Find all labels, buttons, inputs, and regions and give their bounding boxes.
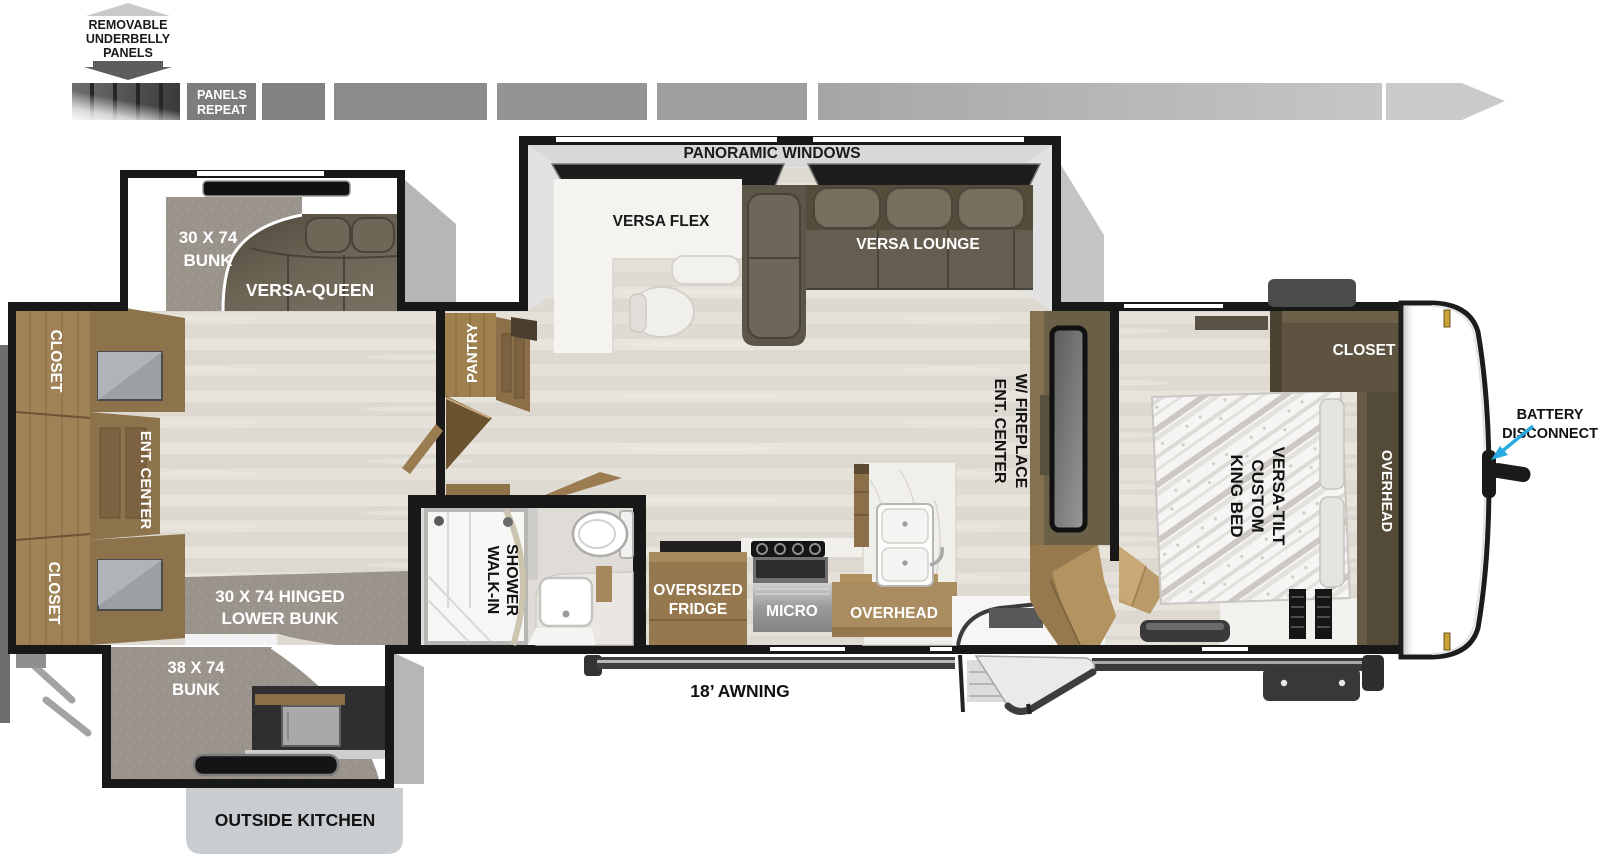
svg-text:OVERHEAD: OVERHEAD bbox=[850, 605, 938, 622]
svg-text:REMOVABLE: REMOVABLE bbox=[89, 18, 168, 32]
svg-text:PANTRY: PANTRY bbox=[464, 323, 481, 383]
svg-text:PANELS: PANELS bbox=[197, 88, 247, 102]
svg-text:VERSA-TILT: VERSA-TILT bbox=[1269, 447, 1288, 546]
svg-text:38 X 74: 38 X 74 bbox=[168, 659, 226, 677]
svg-text:W/ FIREPLACE: W/ FIREPLACE bbox=[1012, 374, 1029, 489]
svg-text:ENT. CENTER: ENT. CENTER bbox=[137, 431, 154, 530]
svg-text:OVERSIZED: OVERSIZED bbox=[653, 582, 743, 599]
svg-text:18’ AWNING: 18’ AWNING bbox=[690, 681, 790, 701]
svg-text:30 X 74 HINGED: 30 X 74 HINGED bbox=[215, 587, 344, 606]
svg-text:CLOSET: CLOSET bbox=[1333, 342, 1396, 359]
svg-text:CLOSET: CLOSET bbox=[45, 562, 62, 625]
svg-text:OUTSIDE KITCHEN: OUTSIDE KITCHEN bbox=[215, 810, 375, 830]
svg-text:VERSA LOUNGE: VERSA LOUNGE bbox=[856, 236, 979, 253]
svg-text:PANORAMIC WINDOWS: PANORAMIC WINDOWS bbox=[683, 145, 860, 162]
svg-text:BATTERY: BATTERY bbox=[1517, 407, 1584, 423]
svg-text:MICRO: MICRO bbox=[766, 603, 818, 620]
svg-text:30 X 74: 30 X 74 bbox=[179, 228, 238, 247]
svg-text:WALK-IN: WALK-IN bbox=[484, 546, 501, 614]
svg-text:UNDERBELLY: UNDERBELLY bbox=[86, 32, 171, 46]
svg-text:KING BED: KING BED bbox=[1227, 454, 1246, 537]
svg-text:ENT. CENTER: ENT. CENTER bbox=[991, 379, 1008, 484]
svg-text:PANELS: PANELS bbox=[103, 46, 153, 60]
svg-text:LOWER BUNK: LOWER BUNK bbox=[221, 609, 339, 628]
svg-text:FRIDGE: FRIDGE bbox=[669, 601, 728, 618]
svg-text:CLOSET: CLOSET bbox=[47, 330, 64, 393]
svg-text:OVERHEAD: OVERHEAD bbox=[1378, 450, 1394, 532]
svg-text:BUNK: BUNK bbox=[183, 251, 233, 270]
svg-text:CUSTOM: CUSTOM bbox=[1248, 459, 1267, 532]
svg-text:VERSA FLEX: VERSA FLEX bbox=[613, 213, 710, 230]
svg-text:SHOWER: SHOWER bbox=[503, 544, 520, 616]
svg-text:BUNK: BUNK bbox=[172, 681, 220, 699]
svg-text:REPEAT: REPEAT bbox=[197, 103, 247, 117]
svg-text:VERSA-QUEEN: VERSA-QUEEN bbox=[246, 280, 374, 300]
